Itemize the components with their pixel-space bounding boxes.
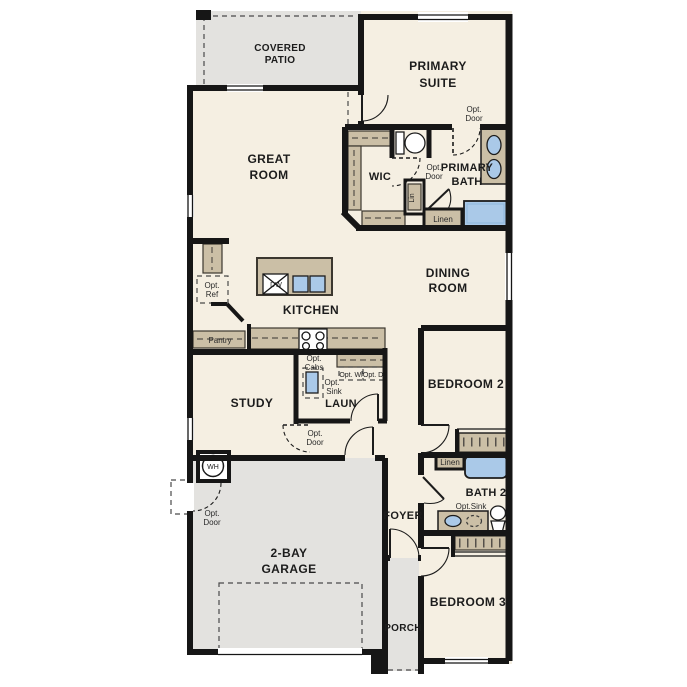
svg-text:Door: Door [203, 518, 221, 527]
pantry-label: Pantry [208, 336, 231, 345]
bath2-linen-label: Linen [440, 458, 460, 467]
svg-text:Door: Door [306, 438, 324, 447]
floorplan-page: COVERED PATIO PRIMARY SUITE GREAT ROOM W… [0, 0, 687, 687]
laundry-label: LAUN [325, 398, 357, 410]
porch-floor [388, 558, 419, 671]
bedroom2-closet-shelf [459, 433, 507, 452]
svg-text:Door: Door [465, 114, 483, 123]
window-dining-room [505, 253, 514, 300]
kitchen-sink-icon [293, 276, 308, 292]
porch-label: PORCH [384, 623, 422, 634]
svg-text:Ref: Ref [206, 290, 219, 299]
opt-dryer-label: Opt. D. [363, 372, 385, 379]
primary-toilet-icon [396, 132, 404, 154]
bath2-toilet-icon [491, 506, 506, 520]
opt-door-hall-label: Opt. [307, 429, 322, 438]
primary-tub-icon [464, 201, 507, 226]
window-bedroom3 [445, 657, 488, 666]
garage-side-door-opening [186, 483, 194, 511]
great-room-label: GREAT [247, 152, 290, 166]
primary-sink-icon [487, 136, 501, 155]
window-great-room [186, 195, 194, 217]
primary-bath-label: PRIMARY [441, 162, 494, 174]
foyer-label: FOYER [383, 510, 422, 522]
bedroom2-label: BEDROOM 2 [428, 377, 504, 391]
water-heater-label: WH [207, 464, 219, 471]
svg-text:Sink: Sink [326, 387, 343, 396]
covered-patio-label: COVERED [254, 43, 306, 54]
svg-text:BATH: BATH [452, 176, 483, 188]
opt-door-garage-label: Opt. [204, 509, 219, 518]
svg-text:PATIO: PATIO [265, 55, 296, 66]
primary-linen-label: Linen [433, 215, 453, 224]
dining-room-label: DINING [426, 266, 470, 280]
primary-suite-label: PRIMARY [409, 59, 467, 73]
opt-washer-label: Opt. W. [339, 372, 362, 379]
kitchen-label: KITCHEN [283, 303, 339, 317]
svg-text:ROOM: ROOM [429, 281, 468, 295]
window-patio-slider [227, 84, 263, 92]
svg-text:SUITE: SUITE [419, 76, 456, 90]
svg-text:Cabs: Cabs [305, 363, 324, 372]
lin-label: Lin [409, 193, 416, 202]
svg-text:GARAGE: GARAGE [261, 562, 316, 576]
svg-text:ROOM: ROOM [250, 168, 289, 182]
opt-sink-laundry-label: Opt. [324, 378, 339, 387]
opt-door-wic-label: Opt. [426, 163, 441, 172]
opt-door-suite-label: Opt. [466, 105, 481, 114]
study-label: STUDY [231, 396, 274, 410]
opt-cabs-label: Opt. [306, 354, 321, 363]
bath2-label: BATH 2 [466, 487, 507, 499]
porch-corner-wall [371, 655, 385, 674]
bath2-tub-icon [465, 456, 507, 478]
exterior-mask [184, 655, 383, 687]
opt-ref-label: Opt. [204, 281, 219, 290]
laundry-sink-icon [306, 372, 318, 393]
bedroom3-label: BEDROOM 3 [430, 595, 506, 609]
wic-label: WIC [369, 171, 391, 183]
bath2-sink-icon [445, 516, 461, 527]
window-primary-suite [418, 12, 468, 22]
window-study [186, 418, 194, 440]
opt-sink-bath2-label: Opt.Sink [456, 502, 488, 511]
garage-door-opening [218, 648, 362, 657]
dishwasher-label: DW [270, 282, 282, 289]
garage-label: 2-BAY [271, 546, 308, 560]
patio-post [196, 10, 211, 20]
floorplan-drawing: COVERED PATIO PRIMARY SUITE GREAT ROOM W… [0, 0, 687, 687]
svg-text:Door: Door [425, 172, 443, 181]
